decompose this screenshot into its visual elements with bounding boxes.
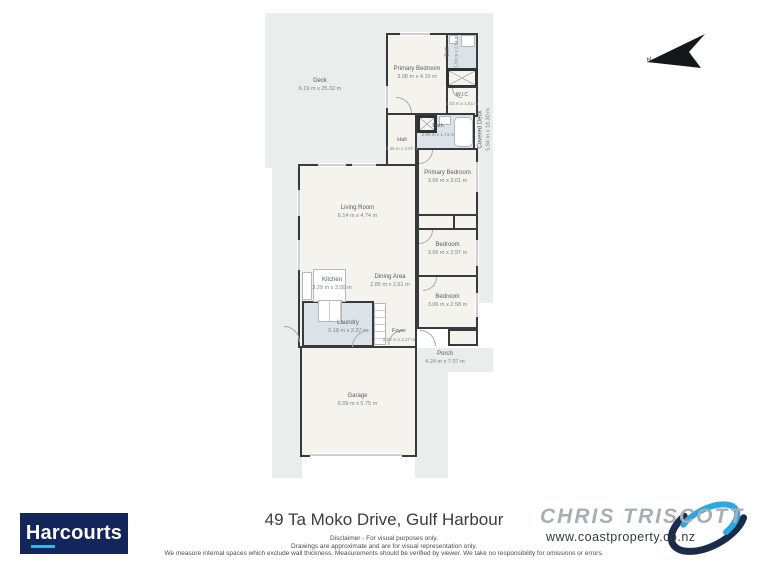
window-primary1-west bbox=[385, 86, 389, 108]
label-laundry: Laundry5.18 m x 2.27 m bbox=[312, 320, 384, 335]
label-porch: Porch4.24 m x 7.07 m bbox=[415, 351, 475, 366]
window-living-north-2 bbox=[352, 163, 376, 167]
entry-closet bbox=[448, 329, 478, 346]
label-bedroom-1: Bedroom3.06 m x 2.97 m bbox=[417, 242, 478, 257]
ensuite-vanity bbox=[461, 35, 475, 47]
label-wic: W.I.C1.03 m x 1.61 m bbox=[444, 92, 480, 107]
label-ensuite-bath: Bath1.50 m x 2.54 m bbox=[445, 26, 460, 78]
disclaimer-line-3: We measure internal spaces which exclude… bbox=[0, 550, 768, 558]
laundry-appliances bbox=[318, 300, 342, 322]
garage-door bbox=[310, 453, 402, 457]
agent-logo-text: CHRIS TRISCOTT bbox=[540, 505, 744, 529]
label-dining-area: Dining Area2.85 m x 2.61 m bbox=[360, 274, 420, 289]
label-kitchen: Kitchen3.29 m x 3.00 m bbox=[304, 277, 360, 292]
label-living-room: Living Room6.14 m x 4.74 m bbox=[310, 205, 405, 220]
door-porch-entry bbox=[420, 330, 436, 346]
agent-website: www.coastproperty.co.nz bbox=[546, 530, 696, 544]
deck-area bbox=[265, 35, 388, 168]
north-arrow-icon bbox=[645, 32, 709, 76]
driveway-strip bbox=[415, 370, 448, 478]
window-primary1-north bbox=[400, 32, 430, 36]
window-living-north-1 bbox=[318, 163, 346, 167]
floorplan: Deck6.19 m x 25.32 m Covered Deck5.84 m … bbox=[0, 0, 768, 500]
label-bath: Bath2.06 m x 1.74 m bbox=[413, 123, 463, 138]
window-living-west-1 bbox=[297, 190, 301, 216]
label-primary-bedroom-1: Primary Bedroom3.08 m x 4.10 m bbox=[386, 66, 448, 81]
window-living-west-2 bbox=[297, 240, 301, 270]
label-deck: Deck6.19 m x 25.32 m bbox=[265, 78, 375, 93]
label-bedroom-2: Bedroom3.06 m x 2.58 m bbox=[417, 294, 478, 309]
label-foyer: Foyer2.00 m x 2.27 m bbox=[380, 328, 418, 343]
label-garage: Garage6.09 m x 5.75 m bbox=[310, 393, 405, 408]
label-primary-bedroom-2: Primary Bedroom3.06 m x 3.01 m bbox=[417, 170, 478, 185]
label-hall: Hall1.35 m x 3.07 m bbox=[384, 137, 420, 152]
